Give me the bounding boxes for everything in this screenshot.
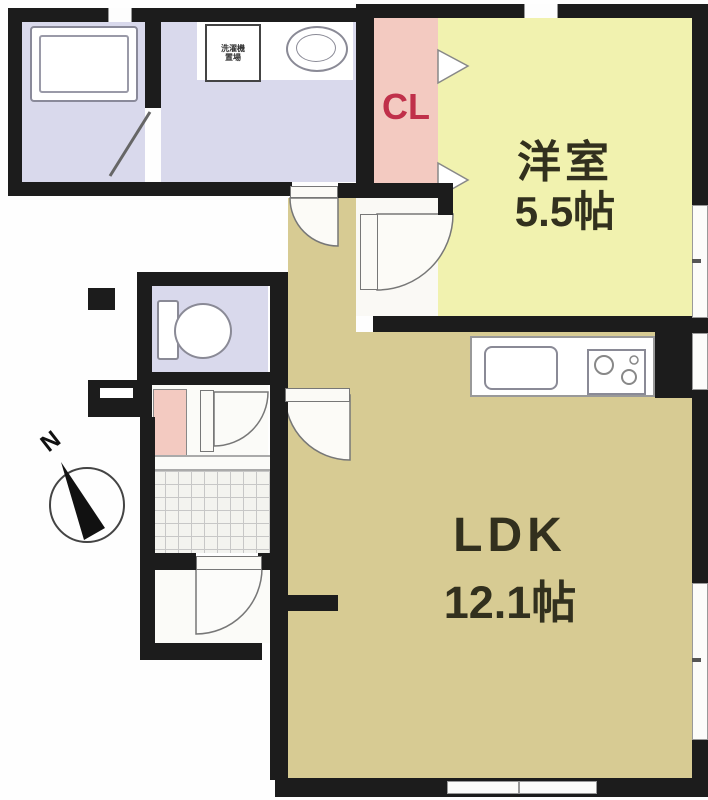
- wall-right-ldk-upper: [692, 390, 708, 583]
- wall-toilet-bottom: [148, 372, 288, 385]
- wall-outer-left: [8, 8, 22, 196]
- bath-vent-window: [108, 8, 132, 22]
- kitchen-right-window: [692, 333, 708, 390]
- closet-label: CL: [374, 86, 438, 128]
- wall-ldk-left: [270, 272, 288, 780]
- wall-bath-bottom: [8, 182, 292, 196]
- western-top-vent: [524, 4, 558, 18]
- ldk-room-name: LDK: [360, 508, 660, 563]
- wall-porch-bottom: [140, 643, 262, 660]
- washing-machine-space: 洗濯機 置場: [205, 24, 261, 82]
- bathtub: [30, 26, 138, 102]
- wall-top-left: [8, 8, 368, 22]
- wall-western-bottom: [373, 316, 708, 332]
- entrance-door-leaf: [196, 556, 262, 570]
- washroom-door-leaf: [290, 186, 338, 198]
- wall-toilet-left: [137, 272, 152, 382]
- wall-bath-divider: [145, 8, 161, 108]
- ps-meter-slot: [100, 388, 133, 398]
- wall-entrance-right: [258, 553, 288, 570]
- wall-closet-bottom: [338, 183, 438, 198]
- hall-door-leaf: [285, 388, 350, 402]
- wall-genkan-left: [140, 417, 155, 660]
- washer-label-line2: 置場: [225, 53, 241, 62]
- room-hall-strip: [288, 198, 356, 332]
- entrance-step: [152, 455, 272, 471]
- wall-right-top: [692, 4, 708, 205]
- compass-needle-icon: [61, 462, 105, 540]
- ldk-room-size: 12.1帖: [360, 566, 660, 631]
- kitchen-sink: [484, 346, 558, 390]
- vanity-sink-inner: [296, 34, 336, 62]
- wall-toilet-top: [137, 272, 288, 286]
- western-window-tick: [692, 259, 701, 263]
- shoe-cabinet: [153, 389, 187, 456]
- western-room-size: 5.5帖: [438, 178, 692, 239]
- wall-entrance-left: [140, 553, 196, 570]
- toilet-bowl: [174, 303, 232, 359]
- ldk-bottom-window-tick: [518, 781, 520, 794]
- wall-ldk-stub: [288, 595, 338, 611]
- wall-washroom-right: [356, 4, 374, 198]
- wall-kitchen-block: [655, 332, 692, 398]
- wall-ps-block: [88, 380, 152, 417]
- room-porch: [155, 570, 270, 643]
- anteroom-door-leaf: [200, 390, 214, 452]
- washer-label-line1: 洗濯機: [221, 44, 245, 53]
- compass-circle: [50, 468, 124, 542]
- wall-ps-stub: [88, 288, 115, 310]
- ldk-right-window-tick: [692, 658, 701, 662]
- entrance-tile-floor: [152, 471, 272, 553]
- ldk-bottom-window: [447, 781, 597, 794]
- compass-north-label: N: [31, 422, 72, 463]
- wall-right-mid: [692, 318, 708, 333]
- floor-plan: 洗濯機 置場: [0, 0, 708, 800]
- western-door-leaf: [360, 214, 378, 290]
